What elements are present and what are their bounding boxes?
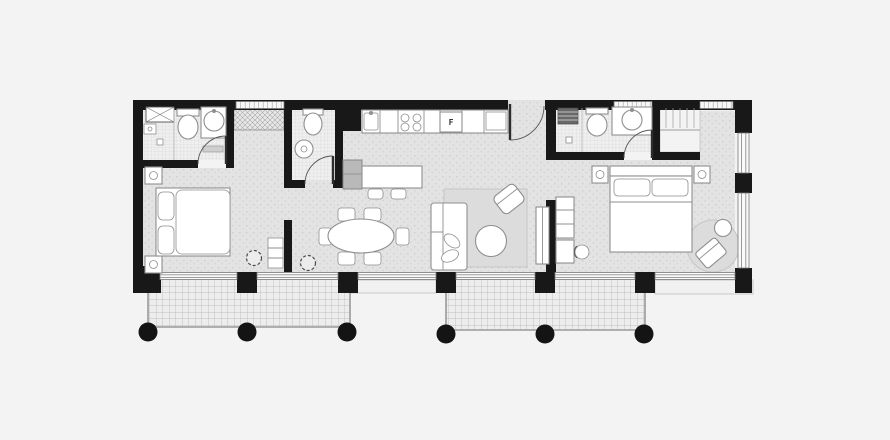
window-top-closet	[236, 102, 284, 109]
east-facade-glazing	[738, 133, 749, 268]
shower-drain	[566, 137, 572, 143]
plant-icon	[247, 251, 262, 266]
nightstand	[694, 166, 710, 183]
round-column	[536, 325, 555, 344]
duvet	[176, 190, 230, 254]
chair	[338, 252, 355, 265]
closet-1-hatch	[234, 108, 284, 130]
fridge-icon: F	[440, 112, 462, 132]
svg-text:F: F	[449, 118, 454, 127]
plant-icon	[301, 256, 316, 271]
washbasin-icon	[201, 107, 226, 138]
floor-plan-page: F	[0, 0, 890, 440]
entry-opening-floor	[508, 100, 546, 110]
double-bed-icon	[156, 188, 230, 256]
floor-plan-svg: F	[0, 0, 890, 440]
toilet-icon	[303, 109, 323, 135]
pedestal-sink-icon	[295, 140, 313, 158]
closet-2	[660, 108, 700, 130]
pillow	[652, 179, 688, 196]
shaft-kitchen	[343, 108, 361, 131]
nightstand	[592, 166, 608, 183]
sink-icon	[364, 111, 378, 130]
round-column	[635, 325, 654, 344]
toilet-icon	[586, 108, 608, 136]
pillow	[614, 179, 650, 196]
pillow	[158, 226, 174, 254]
round-column	[338, 323, 357, 342]
wardrobe	[556, 197, 574, 238]
shelf	[268, 238, 283, 268]
pillow	[158, 192, 174, 220]
round-column	[437, 325, 456, 344]
oval-dining-table	[328, 219, 394, 253]
nightstand	[145, 167, 162, 184]
round-column	[238, 323, 257, 342]
nightstand	[145, 256, 162, 273]
shower-drain	[157, 139, 163, 145]
desk-chair	[575, 245, 589, 259]
toilet-icon	[177, 109, 199, 139]
double-bed-icon	[610, 166, 692, 252]
round-column	[139, 323, 158, 342]
bedroom-2-door-opening	[546, 160, 556, 200]
sofa-icon	[431, 203, 467, 270]
coffee-table-icon	[476, 226, 507, 257]
window-bedroom-2-top	[700, 102, 733, 109]
radiator-icon	[558, 108, 578, 124]
chair	[364, 252, 381, 265]
island-cabinet	[343, 160, 362, 189]
tv-sideboard	[536, 207, 549, 264]
island-top	[362, 166, 422, 188]
towel-rail	[203, 146, 223, 152]
stool	[391, 189, 406, 199]
stool	[368, 189, 383, 199]
tall-cabinet	[486, 112, 506, 130]
side-table	[715, 220, 732, 237]
chair	[396, 228, 409, 245]
bedroom-1-door-opening	[284, 188, 292, 220]
